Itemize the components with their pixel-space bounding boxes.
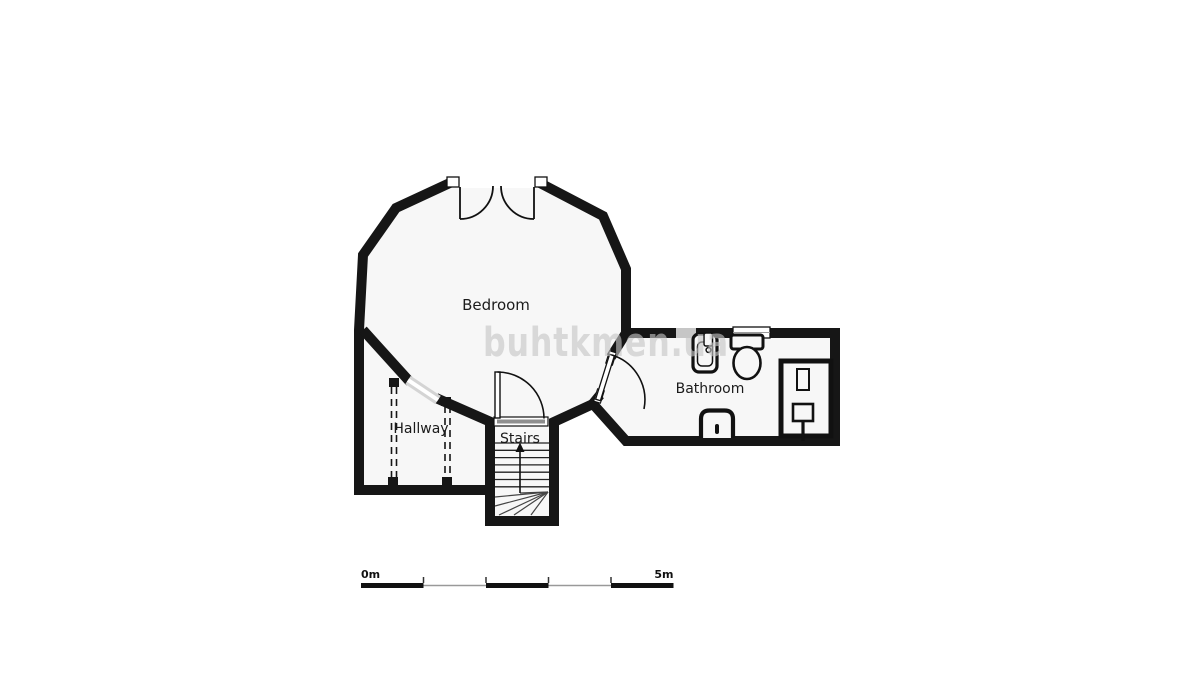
door-opening: [459, 176, 535, 188]
scale-segment: [486, 583, 549, 588]
hallway-label: Hallway: [393, 421, 448, 437]
stairs-label: Stairs: [500, 431, 540, 447]
watermark-text: buhtkmen.ua: [483, 320, 729, 366]
door-frame-right: [535, 177, 547, 187]
scale-end-label: 5m: [654, 568, 673, 581]
scale-bar: 0m 5m: [361, 568, 674, 588]
scale-start-label: 0m: [361, 568, 380, 581]
toilet-icon: [731, 335, 763, 379]
scale-segment: [611, 583, 674, 588]
scale-ticks: [424, 577, 612, 583]
bedroom-label: Bedroom: [462, 296, 530, 314]
wall-stub: [442, 477, 452, 486]
wall-stub: [441, 397, 451, 406]
threshold-inner: [497, 420, 545, 424]
bathroom-label: Bathroom: [676, 381, 745, 397]
door-frame-left: [447, 177, 459, 187]
floor-plan-drawing: Bedroom Bathroom Hallway Stairs buhtkmen…: [0, 0, 1200, 675]
wall-stub: [389, 378, 399, 387]
shower-icon: [781, 361, 831, 441]
door-leaf: [495, 372, 500, 418]
bidet-icon: [701, 411, 733, 439]
wall-stub: [388, 477, 398, 486]
scale-segment: [361, 583, 424, 588]
floor-plan-canvas: Bedroom Bathroom Hallway Stairs buhtkmen…: [0, 0, 1200, 675]
